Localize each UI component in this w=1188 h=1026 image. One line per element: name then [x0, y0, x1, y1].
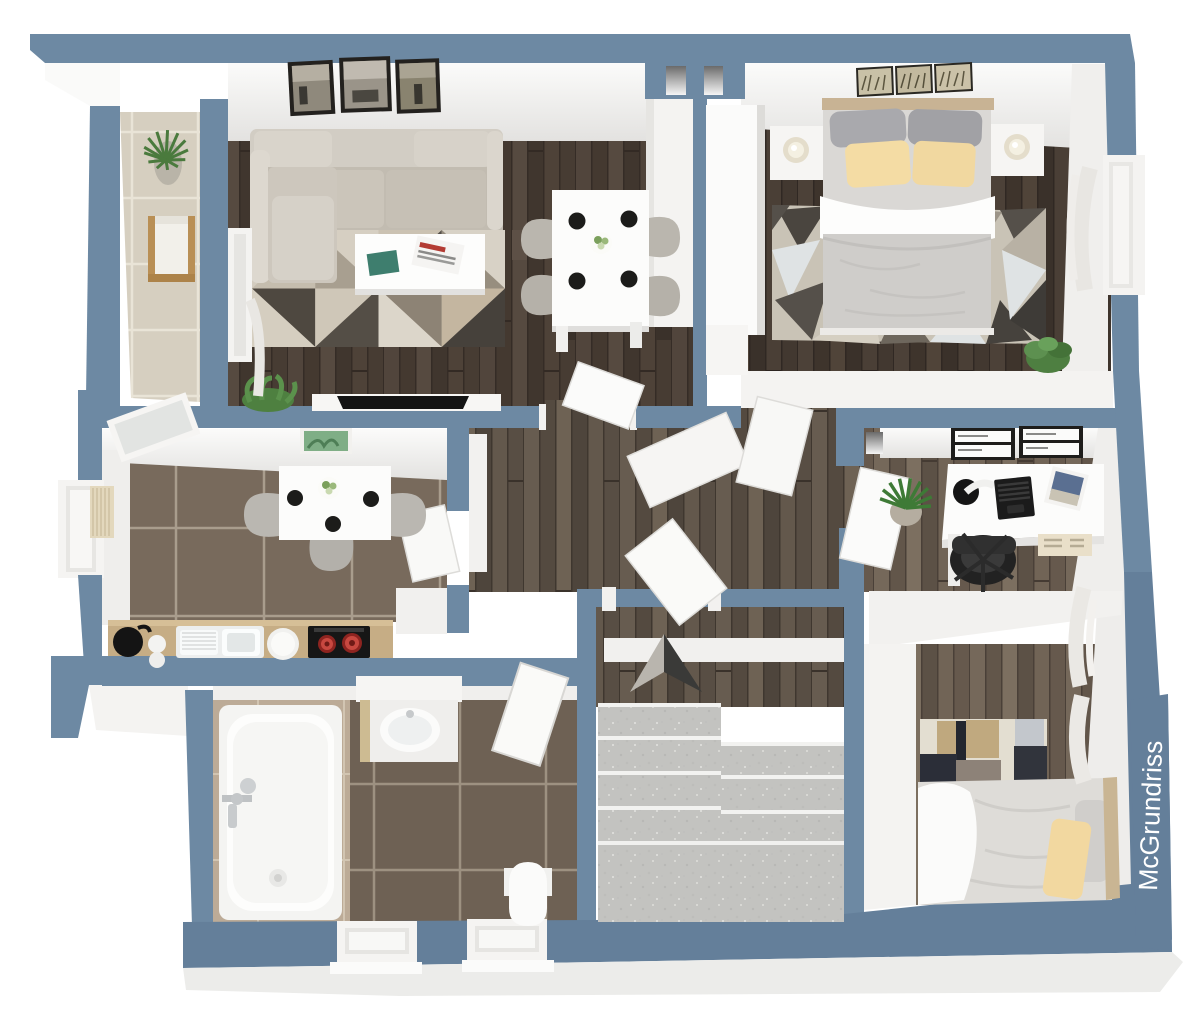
svg-text:McGrundriss: McGrundriss: [1133, 740, 1168, 891]
